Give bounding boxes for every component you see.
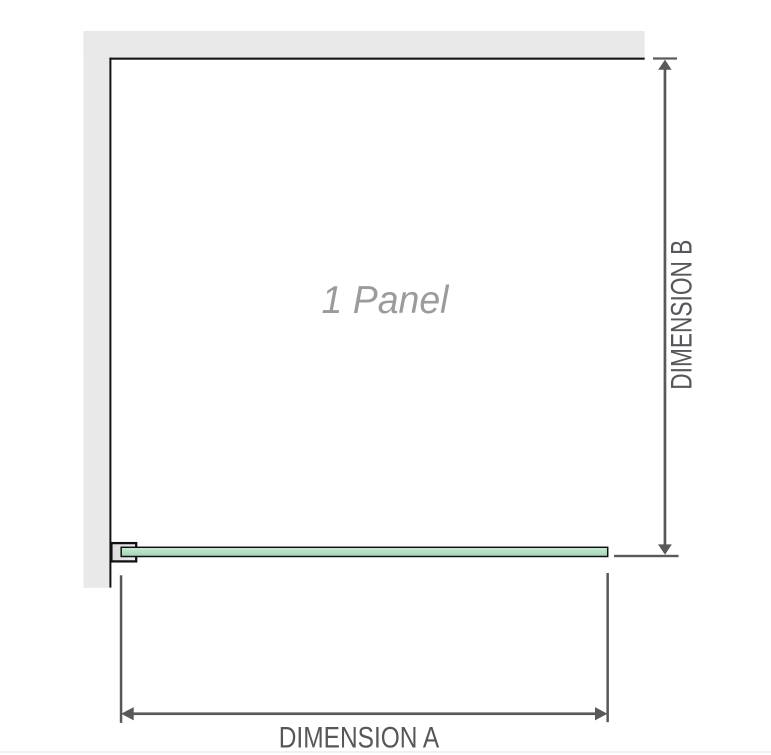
svg-text:DIMENSION A: DIMENSION A xyxy=(279,722,440,755)
svg-text:1 Panel: 1 Panel xyxy=(322,279,450,322)
svg-text:DIMENSION B: DIMENSION B xyxy=(666,240,699,390)
